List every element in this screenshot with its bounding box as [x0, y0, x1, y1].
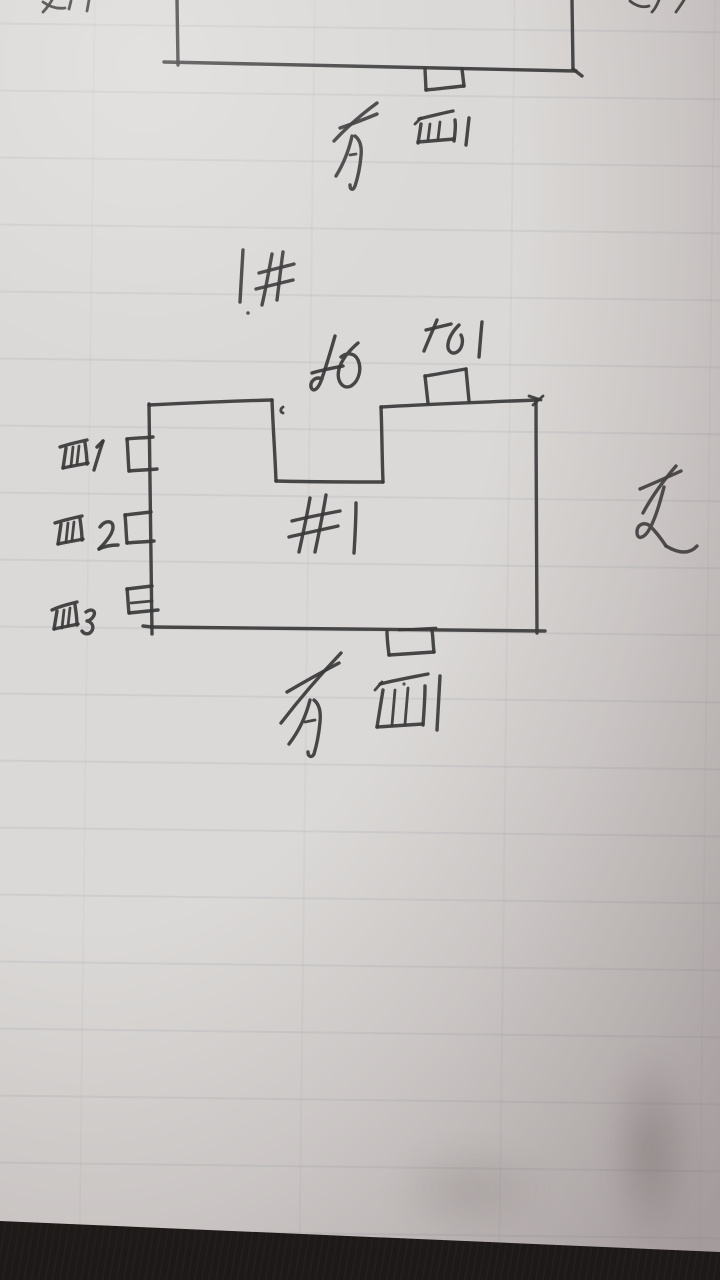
top-sketch-outline [164, 0, 582, 90]
north-bump-label [424, 320, 482, 357]
top-right-partial-marks [630, 0, 684, 12]
north-label [311, 336, 360, 390]
top-sketch-south-label [334, 103, 469, 189]
west-bump-label-1 [60, 440, 103, 470]
photo-of-sketch: 南面1 1井 #1 北 北1 东 南面1 西1 西2 西3 [0, 0, 720, 1280]
west-bump-label-2 [55, 516, 118, 549]
building-id-label [289, 495, 356, 553]
west-bump-label-3 [52, 602, 94, 634]
ink-layer [0, 0, 720, 1280]
main-south-label [281, 653, 440, 756]
note-1-well [240, 250, 294, 315]
top-left-partial-marks [43, 0, 89, 12]
east-label [637, 466, 697, 552]
